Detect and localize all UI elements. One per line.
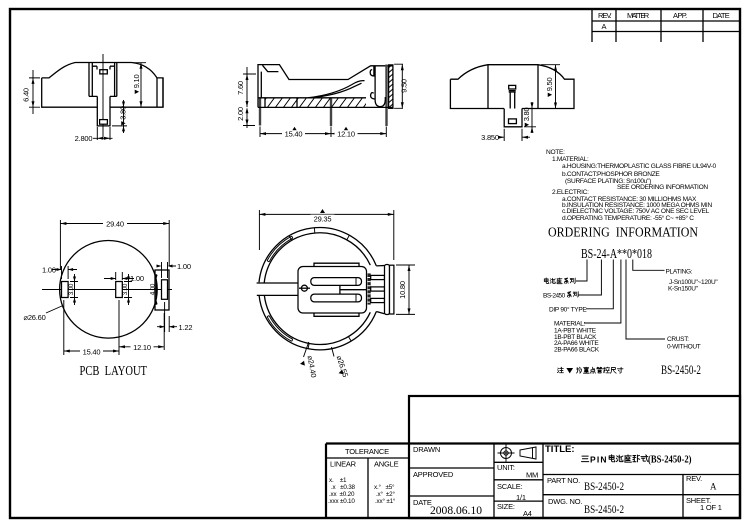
svg-text:ANGLE: ANGLE (374, 460, 399, 469)
svg-text:PCB LAYOUT: PCB LAYOUT (80, 364, 148, 379)
svg-text:2B-PA66 BLACK: 2B-PA66 BLACK (554, 346, 600, 353)
svg-text:REV.: REV. (686, 474, 702, 483)
svg-text:29.35: 29.35 (314, 214, 332, 223)
svg-text:3.00: 3.00 (122, 283, 129, 295)
svg-text:SCALE:: SCALE: (497, 482, 523, 491)
svg-text:▼3.80: ▼3.80 (522, 107, 531, 128)
svg-text:APP.: APP. (673, 11, 687, 20)
svg-text:APPROVED: APPROVED (413, 470, 454, 479)
svg-text:TITLE:: TITLE: (545, 444, 575, 455)
svg-text:3.00: 3.00 (68, 283, 75, 295)
svg-text:MATERIAL:: MATERIAL: (554, 321, 586, 328)
svg-text:BS-2450: BS-2450 (543, 293, 566, 300)
svg-text:MATTER: MATTER (627, 11, 650, 20)
svg-text:LINEAR: LINEAR (330, 460, 357, 469)
svg-text:10.80: 10.80 (398, 281, 407, 299)
svg-text:UNIT:: UNIT: (497, 463, 515, 472)
svg-text:2.ELECTRIC:: 2.ELECTRIC: (552, 189, 589, 196)
svg-text:2008.06.10: 2008.06.10 (430, 503, 482, 517)
svg-text:4.00: 4.00 (150, 283, 157, 295)
svg-text:PART NO.: PART NO. (547, 476, 580, 485)
svg-text:▼9.50: ▼9.50 (545, 77, 554, 98)
svg-text:MM: MM (526, 471, 538, 480)
svg-text:REV.: REV. (598, 11, 612, 20)
svg-text:.xx ±0.20: .xx ±0.20 (329, 491, 355, 498)
svg-text:(BS-2450-2): (BS-2450-2) (648, 455, 692, 466)
svg-text:1.00: 1.00 (130, 274, 144, 283)
svg-text:PLATING:: PLATING: (666, 269, 693, 276)
svg-text:.xx° ±1°: .xx° ±1° (375, 497, 396, 505)
svg-text:▼3.80: ▼3.80 (119, 106, 128, 127)
svg-text:2.800: 2.800 (75, 134, 93, 143)
svg-text:.x ±0.38: .x ±0.38 (331, 484, 356, 491)
svg-text:A4: A4 (523, 509, 532, 518)
svg-text:▼9.10: ▼9.10 (132, 74, 141, 95)
svg-text:K-Sn150U": K-Sn150U" (668, 286, 699, 293)
svg-text:12.10: 12.10 (337, 130, 355, 139)
svg-text:BS-24-A**0*018: BS-24-A**0*018 (581, 246, 652, 261)
svg-text:1 OF 1: 1 OF 1 (700, 503, 722, 512)
svg-text:2.00: 2.00 (236, 107, 245, 121)
svg-text:1.00: 1.00 (177, 262, 191, 271)
svg-text:A: A (602, 22, 607, 31)
svg-text:SEE ORDERING INFORMATION: SEE ORDERING INFORMATION (617, 184, 708, 191)
svg-text:9.50: 9.50 (400, 79, 409, 93)
svg-text:15.40: 15.40 (83, 347, 101, 356)
svg-text:15.40: 15.40 (285, 130, 303, 139)
svg-text:.xxx ±0.10: .xxx ±0.10 (328, 498, 355, 505)
svg-text:d.OPERATING TEMPERATURE: -55°: d.OPERATING TEMPERATURE: -55° C~ +85° C (562, 214, 694, 222)
svg-text:BS-2450-2: BS-2450-2 (661, 363, 701, 377)
svg-text:6.40: 6.40 (22, 88, 31, 102)
svg-text:1.00: 1.00 (42, 266, 56, 275)
svg-text:12.10: 12.10 (133, 343, 151, 352)
svg-text:SIZE:: SIZE: (497, 502, 515, 511)
svg-text:A: A (710, 482, 717, 492)
svg-text:a.HOUSING:THERMOPLASTIC GLASS: a.HOUSING:THERMOPLASTIC GLASS FIBRE UL94… (562, 163, 716, 170)
svg-text:1.MATERIAL:: 1.MATERIAL: (552, 156, 589, 163)
svg-text:3.850: 3.850 (481, 133, 499, 142)
svg-text:BS-2450-2: BS-2450-2 (584, 502, 624, 516)
svg-text:DWG. NO.: DWG. NO. (548, 497, 582, 506)
svg-text:DRAWN: DRAWN (413, 445, 440, 454)
svg-text:DIP 90° TYPE: DIP 90° TYPE (549, 306, 587, 314)
svg-text:DATE: DATE (713, 11, 730, 20)
svg-text:.x° ±2°: .x° ±2° (376, 490, 395, 498)
svg-text:7.60: 7.60 (236, 81, 245, 95)
svg-text:NOTE:: NOTE: (546, 149, 565, 156)
svg-text:x.° ±5°: x.° ±5° (374, 483, 395, 491)
svg-text:1.22: 1.22 (179, 323, 193, 332)
svg-text:c.DIELECTNIC VOLTAGE: 750V AC: c.DIELECTNIC VOLTAGE: 750V AC ONE SEC LE… (562, 208, 710, 215)
svg-text:b.CONTACT:PHOSPHOR BRONZE: b.CONTACT:PHOSPHOR BRONZE (562, 171, 660, 178)
svg-text:CRUST:: CRUST: (667, 336, 689, 343)
svg-text:TOLERANCE: TOLERANCE (345, 447, 389, 456)
svg-text:1/1: 1/1 (516, 493, 526, 502)
svg-text:PIN: PIN (590, 454, 607, 464)
svg-text:29.40: 29.40 (106, 219, 124, 228)
svg-text:x. ±1: x. ±1 (329, 477, 347, 484)
svg-text:BS-2450-2: BS-2450-2 (584, 479, 624, 493)
svg-text:0-WITHOUT: 0-WITHOUT (667, 344, 701, 351)
svg-text:⌀26.60: ⌀26.60 (24, 313, 46, 322)
svg-text:ORDERING INFORMATION: ORDERING INFORMATION (548, 226, 698, 241)
